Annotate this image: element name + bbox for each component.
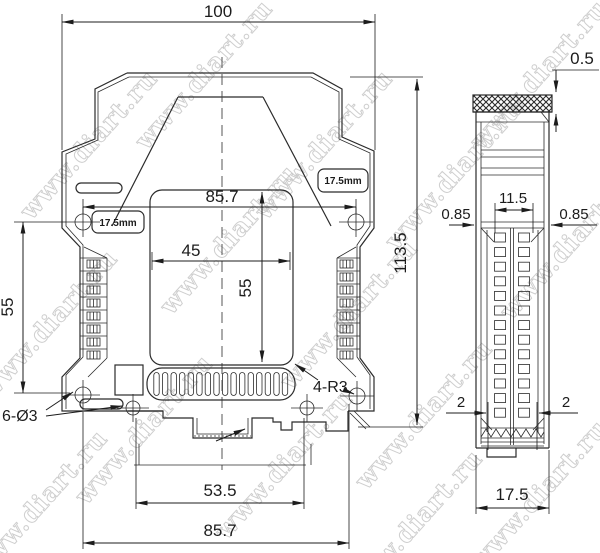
dim-hole-span-left-label: 55 xyxy=(0,298,17,317)
dim-clip-hole-span-label: 53.5 xyxy=(203,481,236,500)
technical-drawing-page: www.diart.ru www.diart.ru www.diart.ru w… xyxy=(0,0,600,553)
din-rail-width-label-right: 17.5mm xyxy=(318,169,368,192)
watermark-text: www.diart.ru xyxy=(248,64,398,226)
dim-wall-right-label: 0.85 xyxy=(559,206,588,223)
dim-wall-left-label: 0.85 xyxy=(441,206,470,223)
dim-cover-lip-label: 0.5 xyxy=(570,49,594,68)
dim-hole-span-top-label: 85.7 xyxy=(205,187,238,206)
callout-mounting-holes-label: 6-Ø3 xyxy=(2,408,38,425)
watermark-text: www.diart.ru xyxy=(338,444,488,553)
dim-inner-width-label: 45 xyxy=(182,241,201,260)
slot-opening-bottom-left xyxy=(80,399,123,409)
dim-rib-left-label: 2 xyxy=(457,394,465,411)
front-square-window xyxy=(115,365,143,395)
clip-latch-arrow xyxy=(216,429,245,441)
din-rail-width-label-left-text: 17.5mm xyxy=(99,218,136,229)
watermark-text: www.diart.ru xyxy=(463,414,600,553)
watermark-text: www.diart.ru xyxy=(493,164,600,326)
dimension-slot-width: 11.5 xyxy=(495,190,533,233)
dim-overall-height-label: 113.5 xyxy=(391,232,410,273)
side-bottom xyxy=(476,428,549,457)
dim-slot-width-label: 11.5 xyxy=(499,190,527,207)
drawing-canvas: www.diart.ru www.diart.ru www.diart.ru w… xyxy=(0,0,600,553)
dim-hole-span-bottom-label: 85.7 xyxy=(203,521,236,540)
callout-corner-radius-label: 4-R3 xyxy=(313,379,348,396)
dim-rib-right-label: 2 xyxy=(562,394,570,411)
din-rail-width-label-right-text: 17.5mm xyxy=(324,176,361,187)
dim-depth-label: 17.5 xyxy=(495,485,528,504)
dim-overall-width-label: 100 xyxy=(204,2,232,21)
dim-inner-height-label: 55 xyxy=(236,279,255,298)
dimension-hole-span-top: 85.7 xyxy=(83,187,356,214)
dimension-wall-left: 0.85 xyxy=(441,206,474,225)
slot-opening-top-left xyxy=(76,183,122,193)
side-top-cover xyxy=(473,95,552,112)
